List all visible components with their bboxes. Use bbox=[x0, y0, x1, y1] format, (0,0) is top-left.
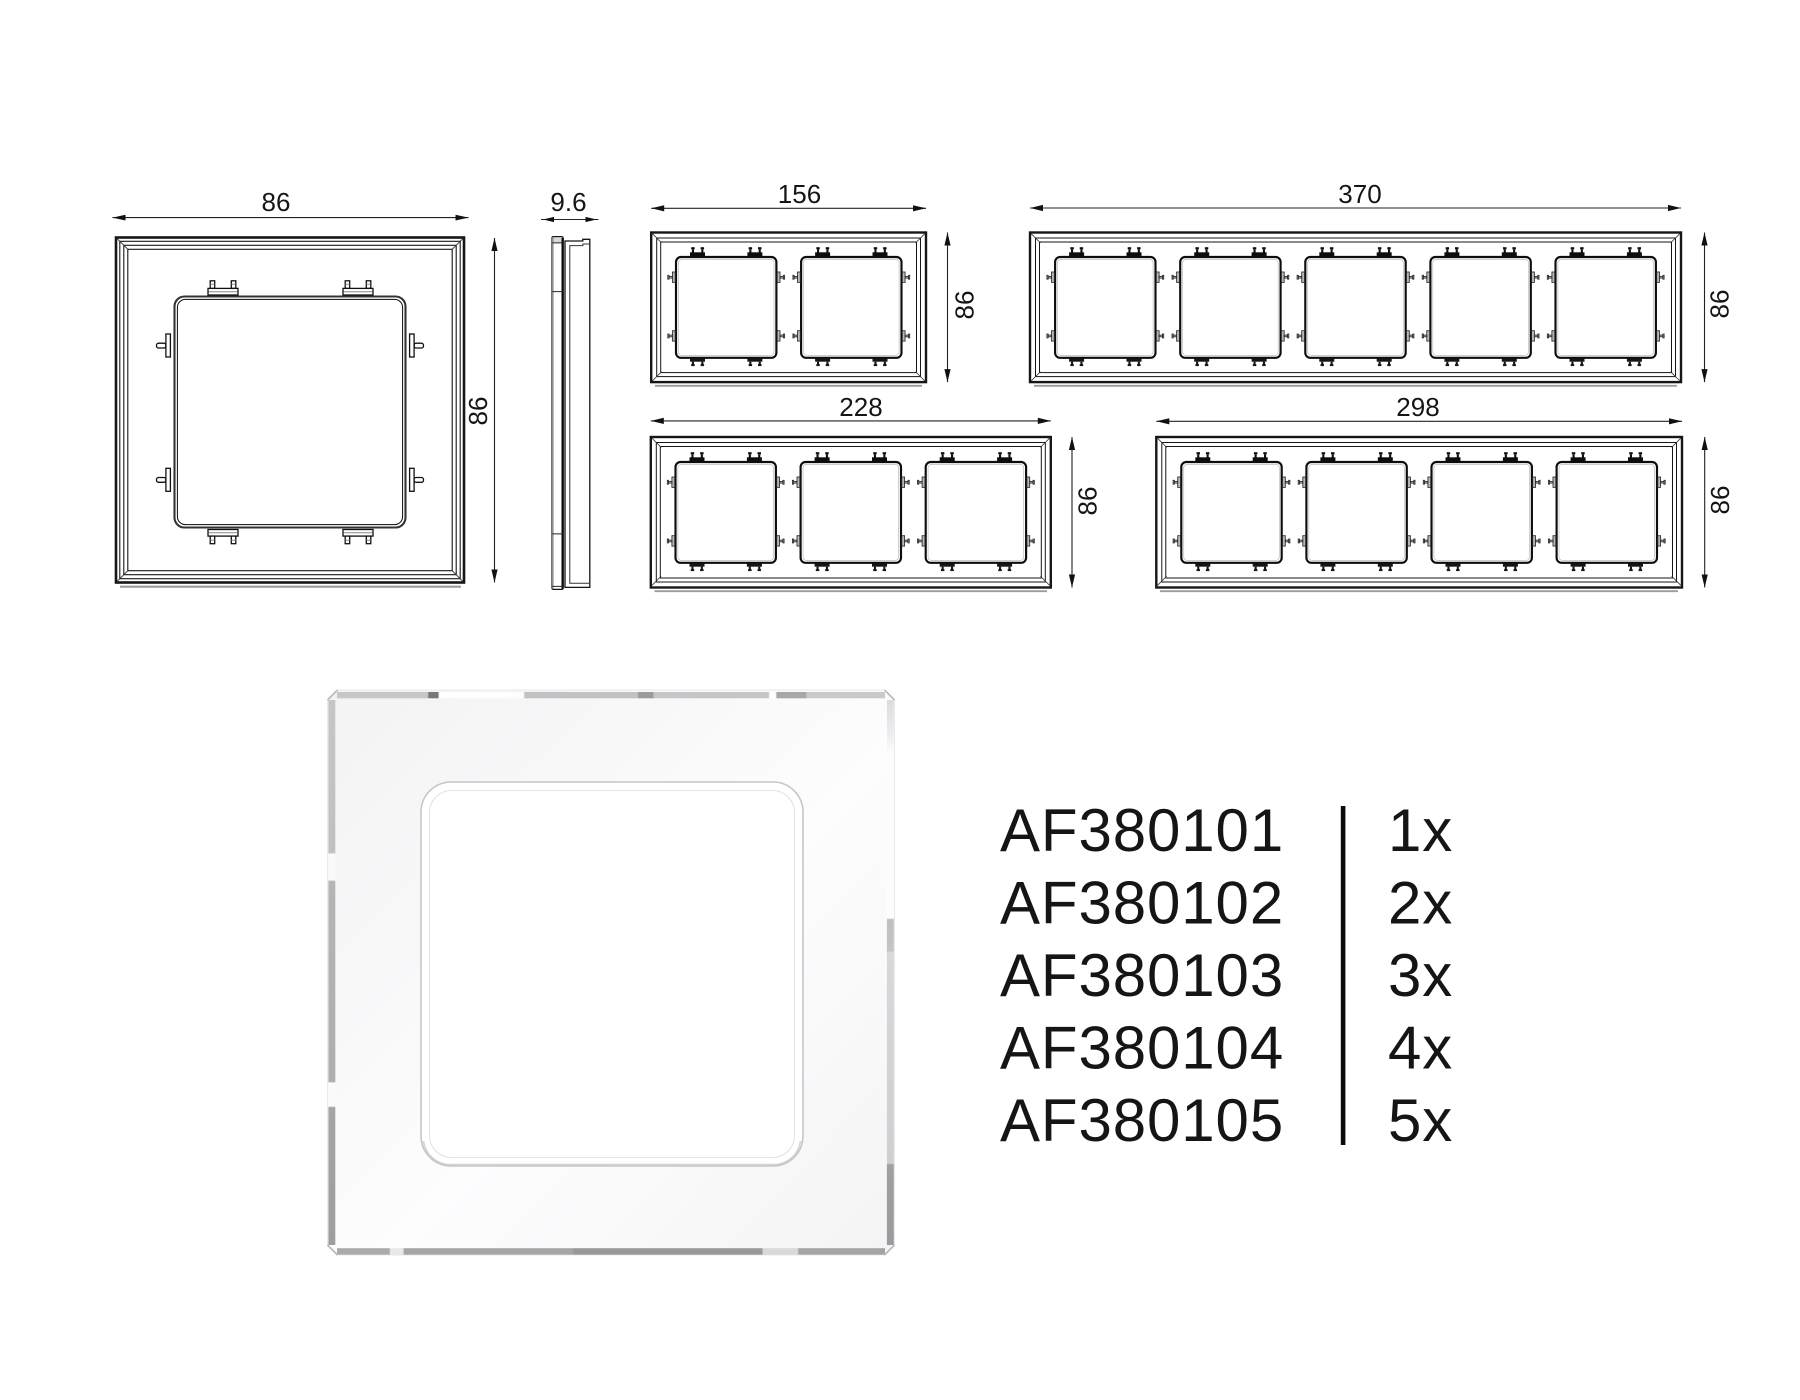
svg-text:370: 370 bbox=[1338, 179, 1381, 209]
svg-text:AF380105: AF380105 bbox=[1000, 1087, 1284, 1154]
svg-text:AF380103: AF380103 bbox=[1000, 942, 1284, 1009]
svg-text:86: 86 bbox=[262, 187, 291, 217]
svg-text:86: 86 bbox=[463, 397, 493, 426]
svg-text:86: 86 bbox=[1073, 487, 1103, 516]
svg-text:1x: 1x bbox=[1388, 797, 1453, 864]
svg-text:AF380101: AF380101 bbox=[1000, 797, 1284, 864]
svg-text:156: 156 bbox=[778, 179, 821, 209]
svg-text:86: 86 bbox=[1705, 290, 1735, 319]
svg-text:AF380104: AF380104 bbox=[1000, 1015, 1284, 1082]
svg-text:9.6: 9.6 bbox=[550, 187, 586, 217]
svg-text:3x: 3x bbox=[1388, 942, 1453, 1009]
svg-text:86: 86 bbox=[1705, 486, 1735, 515]
svg-text:5x: 5x bbox=[1388, 1087, 1453, 1154]
svg-text:AF380102: AF380102 bbox=[1000, 870, 1284, 937]
svg-text:2x: 2x bbox=[1388, 870, 1453, 937]
svg-text:228: 228 bbox=[839, 392, 882, 422]
svg-text:298: 298 bbox=[1396, 392, 1439, 422]
svg-text:86: 86 bbox=[950, 291, 980, 320]
svg-text:4x: 4x bbox=[1388, 1015, 1453, 1082]
